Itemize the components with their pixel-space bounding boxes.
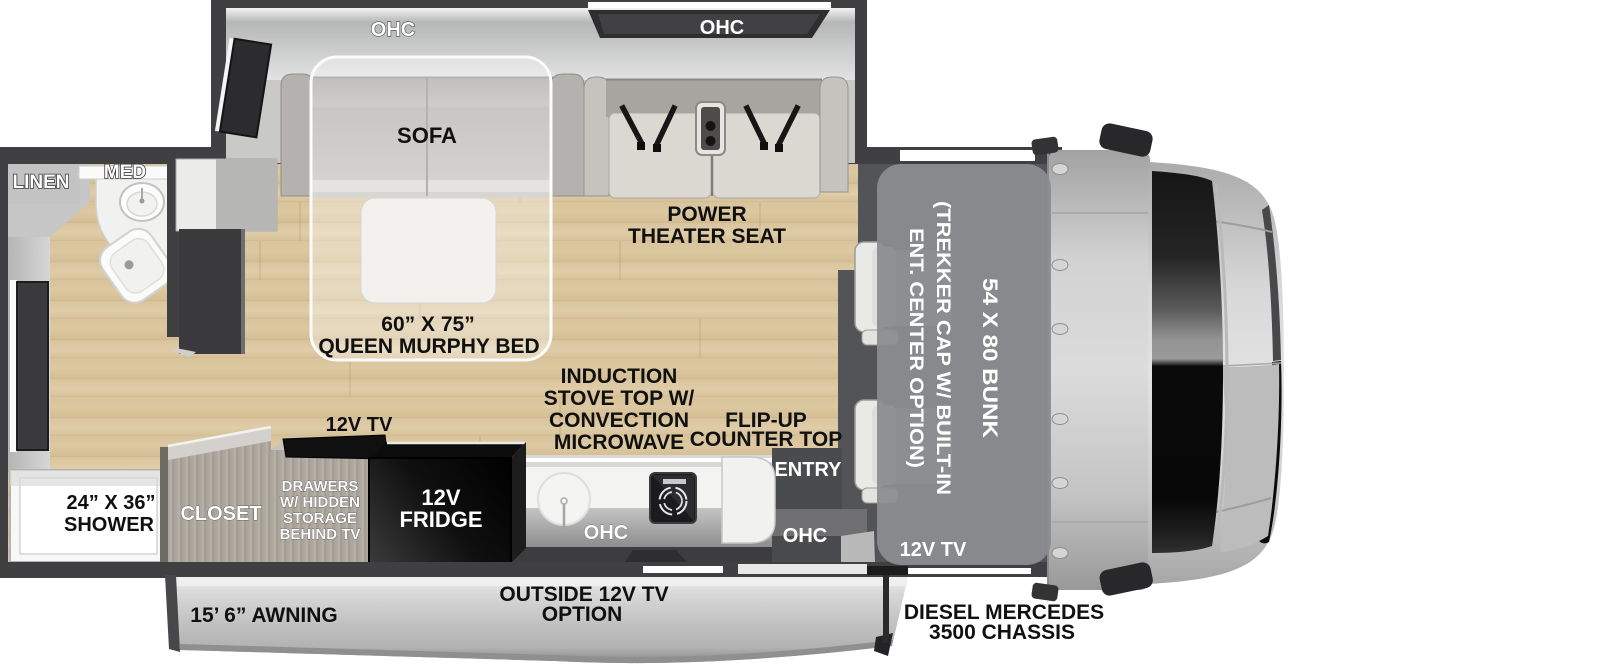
svg-text:12V TV: 12V TV <box>326 414 393 436</box>
svg-text:W/ HIDDEN: W/ HIDDEN <box>280 494 360 511</box>
svg-text:15’ 6” AWNING: 15’ 6” AWNING <box>190 604 337 627</box>
svg-text:12V TV: 12V TV <box>900 539 967 561</box>
svg-text:3500 CHASSIS: 3500 CHASSIS <box>929 621 1075 644</box>
svg-text:SOFA: SOFA <box>397 123 457 148</box>
svg-text:24” X 36”: 24” X 36” <box>67 492 156 514</box>
svg-text:MICROWAVE: MICROWAVE <box>554 431 684 454</box>
svg-text:THEATER SEAT: THEATER SEAT <box>628 225 786 248</box>
svg-text:MED: MED <box>104 162 146 183</box>
svg-text:BEHIND TV: BEHIND TV <box>280 526 361 543</box>
svg-text:ENTRY: ENTRY <box>774 459 842 481</box>
svg-text:CONVECTION: CONVECTION <box>549 409 689 432</box>
svg-text:POWER: POWER <box>667 203 746 226</box>
svg-text:OHC: OHC <box>371 19 415 41</box>
svg-text:FRIDGE: FRIDGE <box>399 507 482 532</box>
svg-text:STORAGE: STORAGE <box>283 510 357 527</box>
svg-text:60” X 75”: 60” X 75” <box>381 313 474 336</box>
svg-text:INDUCTION: INDUCTION <box>561 365 678 388</box>
svg-text:OPTION: OPTION <box>542 603 623 626</box>
svg-text:ENT. CENTER OPTION): ENT. CENTER OPTION) <box>905 228 926 468</box>
svg-text:54 X 80 BUNK: 54 X 80 BUNK <box>978 278 1001 438</box>
svg-text:OHC: OHC <box>700 17 744 39</box>
svg-text:OHC: OHC <box>783 525 827 547</box>
svg-text:COUNTER TOP: COUNTER TOP <box>690 428 842 451</box>
svg-text:OHC: OHC <box>584 522 628 544</box>
svg-text:QUEEN MURPHY BED: QUEEN MURPHY BED <box>318 335 539 358</box>
svg-text:DRAWERS: DRAWERS <box>282 478 359 495</box>
svg-text:SHOWER: SHOWER <box>64 514 155 536</box>
svg-text:(TREKKER CAP W/ BUILT-IN: (TREKKER CAP W/ BUILT-IN <box>932 201 953 495</box>
svg-text:LINEN: LINEN <box>13 172 70 193</box>
svg-text:CLOSET: CLOSET <box>180 503 261 525</box>
svg-text:STOVE TOP W/: STOVE TOP W/ <box>544 387 695 410</box>
